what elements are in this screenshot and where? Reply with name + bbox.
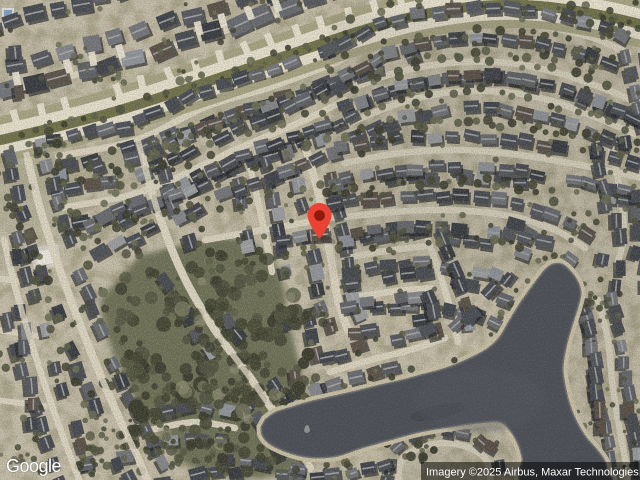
svg-text:Imagery ©2025 Airbus, Maxar Te: Imagery ©2025 Airbus, Maxar Technologies (426, 467, 639, 479)
svg-text:Google: Google (6, 456, 62, 476)
